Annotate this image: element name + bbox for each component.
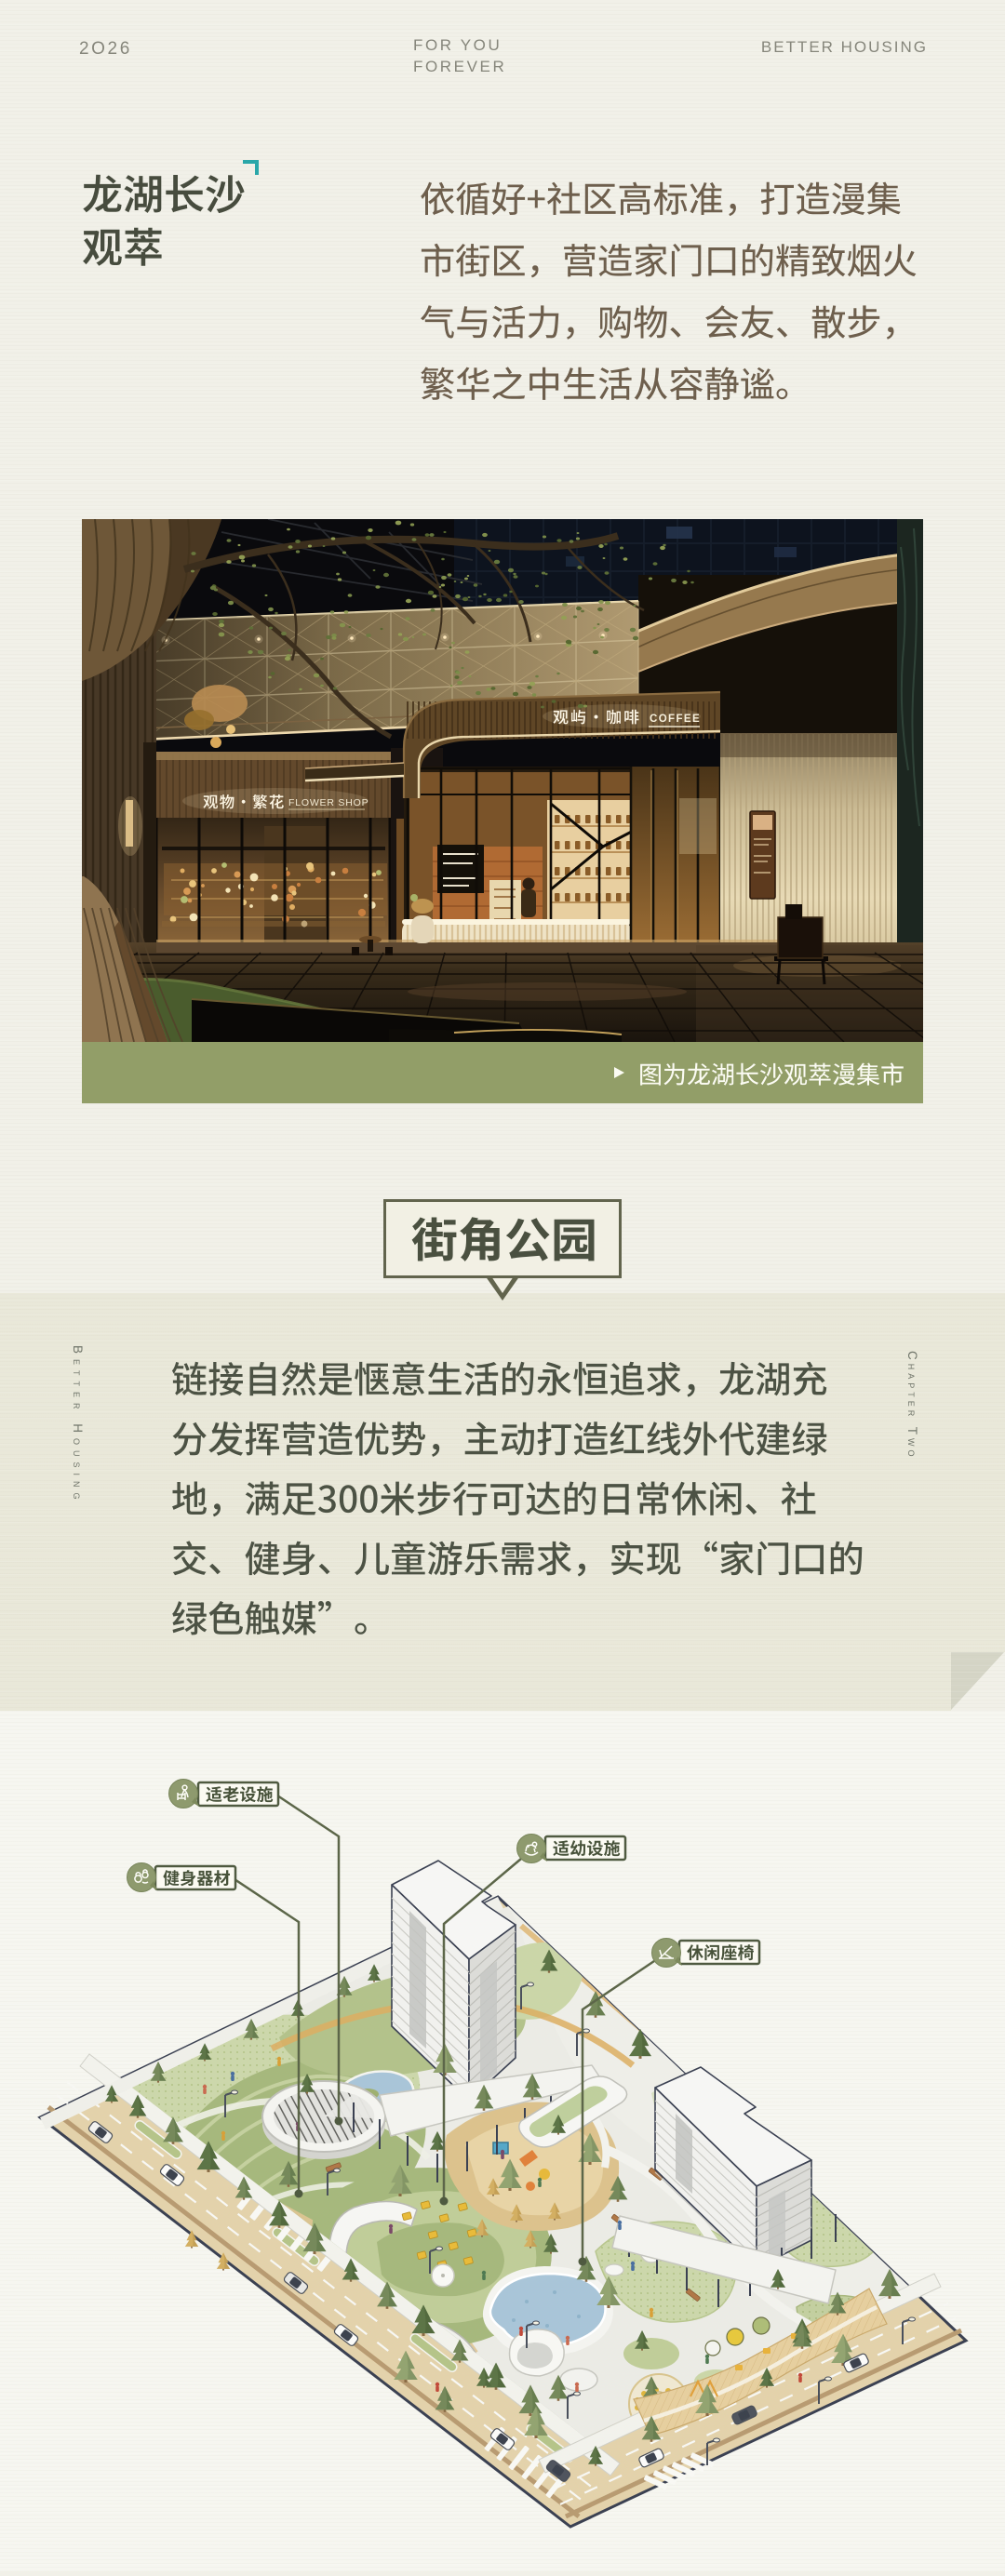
svg-text:FLOWER SHOP: FLOWER SHOP <box>288 797 368 808</box>
svg-text:COFFEE: COFFEE <box>650 714 701 725</box>
